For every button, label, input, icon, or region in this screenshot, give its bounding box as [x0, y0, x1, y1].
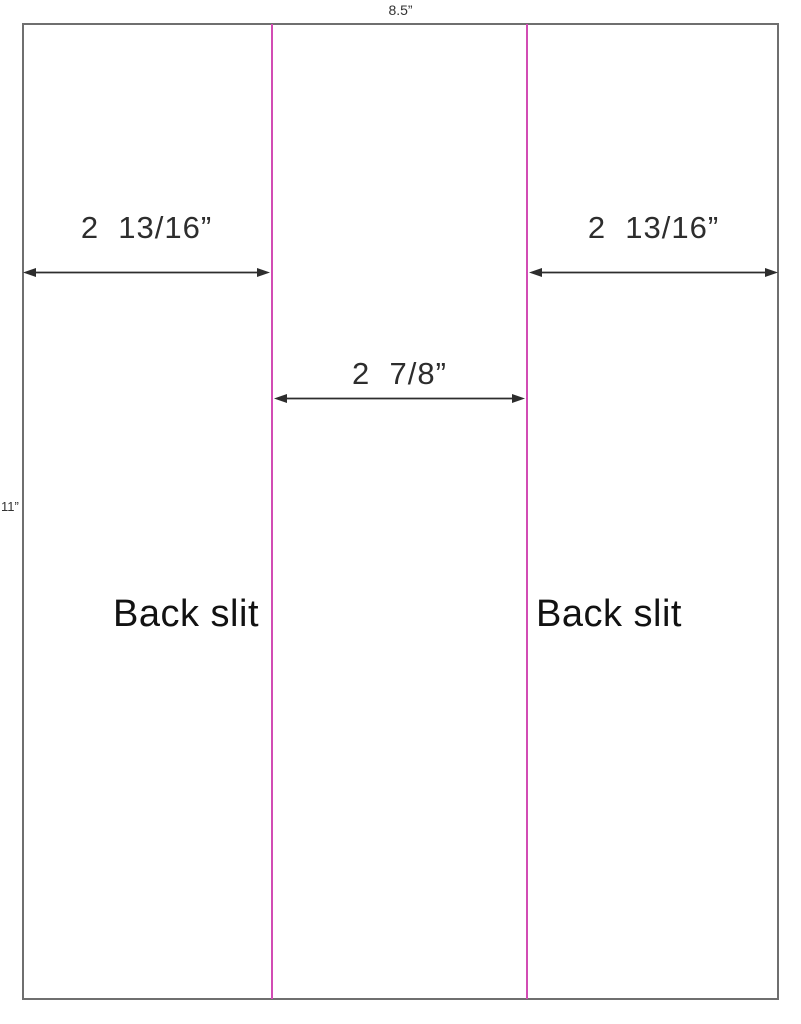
sheet-height-label: 11”	[1, 499, 19, 514]
center-panel-dimension-arrow-icon	[274, 390, 525, 407]
left-panel-width-label: 2 13/16”	[23, 210, 270, 246]
left-panel-dimension-arrow-icon	[23, 264, 270, 281]
right-slit-line	[526, 24, 528, 999]
center-panel-width-label: 2 7/8”	[274, 356, 525, 392]
left-back-slit-label: Back slit	[22, 593, 259, 636]
sheet-layout-diagram: 8.5” 11” 2 13/16” 2 13/16” 2 7/8” Back s…	[0, 0, 801, 1024]
sheet-outline	[22, 23, 779, 1000]
left-slit-line	[271, 24, 273, 999]
right-panel-width-label: 2 13/16”	[529, 210, 778, 246]
sheet-width-label: 8.5”	[0, 2, 801, 18]
right-back-slit-label: Back slit	[536, 593, 682, 636]
right-panel-dimension-arrow-icon	[529, 264, 778, 281]
